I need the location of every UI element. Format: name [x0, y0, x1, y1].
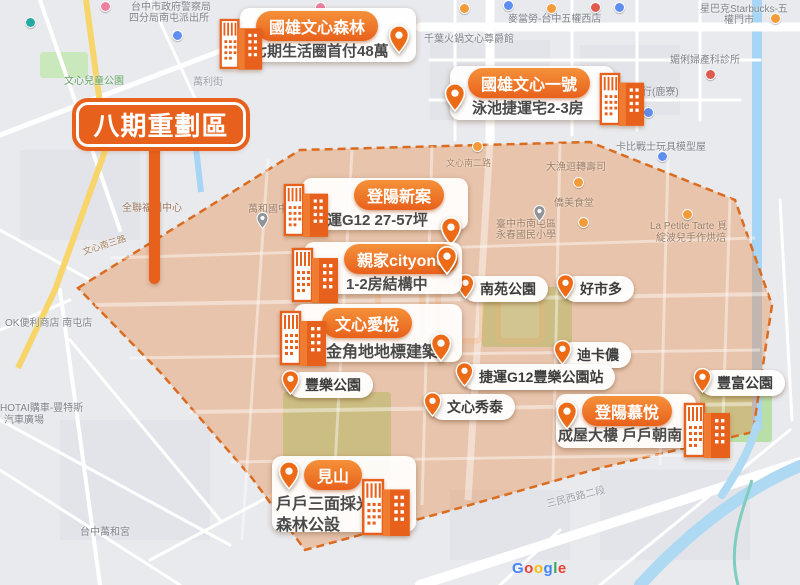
listing-card-jianshan[interactable]: 見山 戶戶三面採光 森林公設 [268, 454, 420, 538]
map-pin-icon [436, 245, 458, 276]
poi-store-icon [100, 1, 111, 12]
map-label: HOTAI購車-豐特斯 [0, 403, 83, 414]
card-title: 國雄文心森林 [256, 11, 378, 41]
card-title: 登陽慕悅 [582, 396, 672, 426]
google-logo-letter: o [534, 560, 544, 577]
poi-shop-icon [614, 2, 625, 13]
listing-card-dengyang-muyue[interactable]: 登陽慕悅 成屋大樓 戶戶朝南 [552, 392, 736, 466]
poi-food-icon [459, 3, 470, 14]
map-pin-icon [430, 332, 452, 363]
poi-clinic-icon [705, 69, 716, 80]
poi-pill-label: 捷運G12豐樂公園站 [479, 369, 603, 385]
listing-card-cityone[interactable]: 親家cityone 1-2房結構中 [290, 240, 476, 306]
card-subtitle: 七期生活圈首付48萬 [252, 40, 389, 61]
building-icon [278, 306, 328, 368]
google-logo-letter: e [558, 560, 567, 577]
card-subtitle: 泳池捷運宅2-3房 [472, 97, 584, 118]
card-title: 登陽新案 [354, 180, 444, 210]
card-title: 見山 [304, 460, 362, 490]
listing-card-guoxiong-one[interactable]: 國雄文心一號 泳池捷運宅2-3房 [444, 64, 646, 130]
poi-pill-fengle-park[interactable]: 豐樂公園 [288, 372, 373, 398]
poi-pill-label: 好市多 [580, 281, 622, 297]
poi-bakery-icon [682, 209, 693, 220]
poi-shop-icon [657, 151, 668, 162]
map-label: 臺中市南屯區 [496, 219, 556, 230]
poi-shop-icon [503, 0, 514, 11]
map-label: 綻波兒手作烘焙 [656, 233, 726, 244]
poi-food-icon [573, 177, 584, 188]
card-title: 文心愛悅 [322, 308, 412, 338]
map-pin-icon [556, 273, 575, 300]
map-pin-icon [388, 24, 410, 55]
building-icon [282, 180, 330, 238]
listing-card-guoxiong-forest[interactable]: 國雄文心森林 七期生活圈首付48萬 [218, 6, 418, 72]
card-subtitle: 金角地地標建築 [326, 338, 438, 362]
map-label: 四分局南屯派出所 [129, 13, 209, 24]
poi-cafe-icon [770, 13, 781, 24]
map-label-park: 文心兒童公園 [64, 76, 124, 87]
poi-pill-wenxin-showtime[interactable]: 文心秀泰 [430, 394, 515, 420]
map-pin-icon [693, 367, 712, 394]
map-label: 媚俐婦產科診所 [670, 55, 740, 66]
listing-card-wenxin-aiyue[interactable]: 文心愛悅 金角地地標建築 [278, 302, 470, 372]
building-icon [682, 398, 732, 460]
card-title: 國雄文心一號 [468, 68, 590, 98]
map-label: 僑美食堂 [554, 198, 594, 209]
card-subtitle: 1-2房結構中 [346, 273, 428, 294]
poi-pill-label: 迪卡儂 [577, 347, 619, 363]
map-label: 千葉火鍋文心尊爵館 [424, 34, 514, 45]
poi-pill-label: 南苑公園 [480, 281, 536, 297]
map-label: 永春國民小學 [496, 230, 556, 241]
map-label-road: 萬利街 [193, 77, 223, 88]
map-pin-icon [553, 339, 572, 366]
poi-health-icon [590, 2, 601, 13]
map-pin-icon [281, 369, 300, 396]
school-pin-icon [256, 212, 269, 229]
school-pin-icon [533, 205, 546, 222]
poi-attraction-icon [25, 17, 36, 28]
card-subtitle-line2: 森林公設 [276, 511, 340, 535]
poi-food-icon [472, 141, 483, 152]
poi-food-icon [578, 217, 589, 228]
building-icon [360, 476, 412, 536]
building-icon [598, 70, 646, 126]
google-logo-letter: G [512, 560, 524, 577]
map-screenshot: 台中市政府警察局 四分局南屯派出所 文心兒童公園 萬利街 麥當勞-台中五權西店 … [0, 0, 800, 585]
map-label: 權門市 [724, 15, 754, 26]
map-label: 台中市政府警察局 [131, 2, 211, 13]
google-logo[interactable]: Google [512, 560, 567, 577]
poi-pill-mrt-g12-station[interactable]: 捷運G12豐樂公園站 [462, 364, 615, 390]
map-pin-icon [444, 82, 466, 113]
listing-card-dengyang-new[interactable]: 登陽新案 捷運G12 27-57坪 [282, 176, 470, 246]
poi-food-icon [546, 3, 557, 14]
poi-shop-icon [172, 30, 183, 41]
map-pin-icon [278, 460, 300, 491]
banner-pointer [149, 146, 160, 284]
zone-banner[interactable]: 八期重劃區 [76, 102, 246, 147]
map-pin-icon [556, 400, 578, 431]
map-label: OK便利商店 南屯店 [5, 318, 92, 329]
poi-pill-label: 文心秀泰 [447, 399, 503, 415]
map-label: 大漁迴轉壽司 [546, 162, 606, 173]
building-icon [218, 16, 264, 70]
building-icon [290, 244, 340, 304]
map-label: 台中萬和宮 [80, 527, 130, 538]
map-label-street: 文心南二路 [446, 158, 491, 169]
map-label: La Petite Tarte 覓 [650, 221, 727, 232]
map-pin-icon [423, 391, 442, 418]
google-logo-letter: g [544, 560, 554, 577]
map-label: 汽車廣場 [4, 415, 44, 426]
google-logo-letter: o [524, 560, 534, 577]
poi-pill-label: 豐富公園 [717, 375, 773, 391]
poi-pill-costco[interactable]: 好市多 [563, 276, 634, 302]
poi-pill-label: 豐樂公園 [305, 377, 361, 393]
map-label: 麥當勞-台中五權西店 [508, 14, 601, 25]
